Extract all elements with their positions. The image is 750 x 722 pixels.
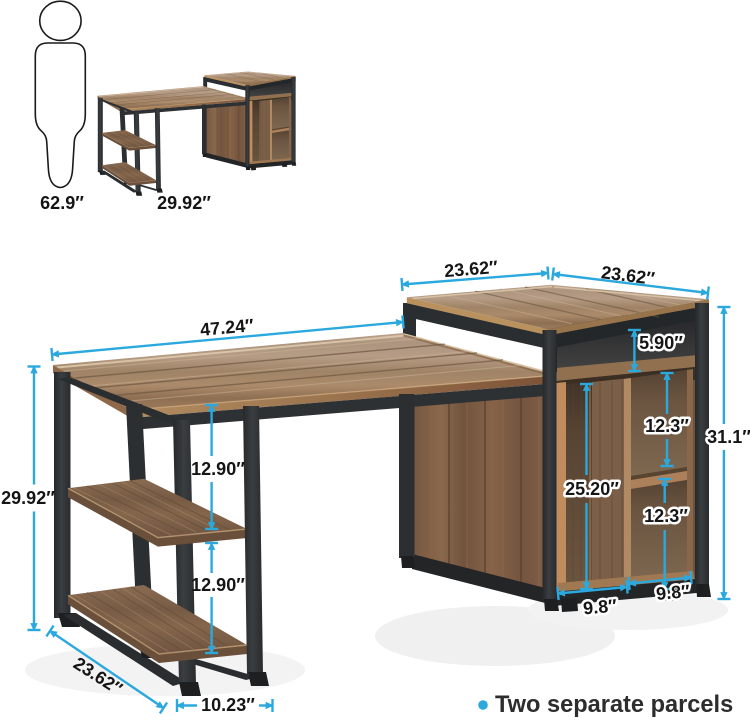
svg-text:31.1″: 31.1″ (707, 427, 750, 447)
svg-text:23.62″: 23.62″ (443, 257, 498, 281)
svg-text:9.8″: 9.8″ (582, 595, 618, 618)
svg-text:5.90″: 5.90″ (639, 333, 683, 353)
svg-text:9.8″: 9.8″ (655, 581, 691, 604)
svg-text:Two separate parcels: Two separate parcels (495, 692, 733, 718)
svg-text:12.3″: 12.3″ (644, 506, 688, 526)
svg-text:25.20″: 25.20″ (565, 479, 619, 499)
svg-text:29.92″: 29.92″ (1, 488, 55, 508)
svg-text:29.92″: 29.92″ (157, 193, 211, 213)
svg-text:62.9″: 62.9″ (40, 193, 84, 213)
svg-text:12.90″: 12.90″ (191, 459, 245, 479)
svg-text:12.3″: 12.3″ (645, 416, 689, 436)
svg-text:10.23″: 10.23″ (201, 695, 255, 715)
svg-text:12.90″: 12.90″ (191, 575, 245, 595)
